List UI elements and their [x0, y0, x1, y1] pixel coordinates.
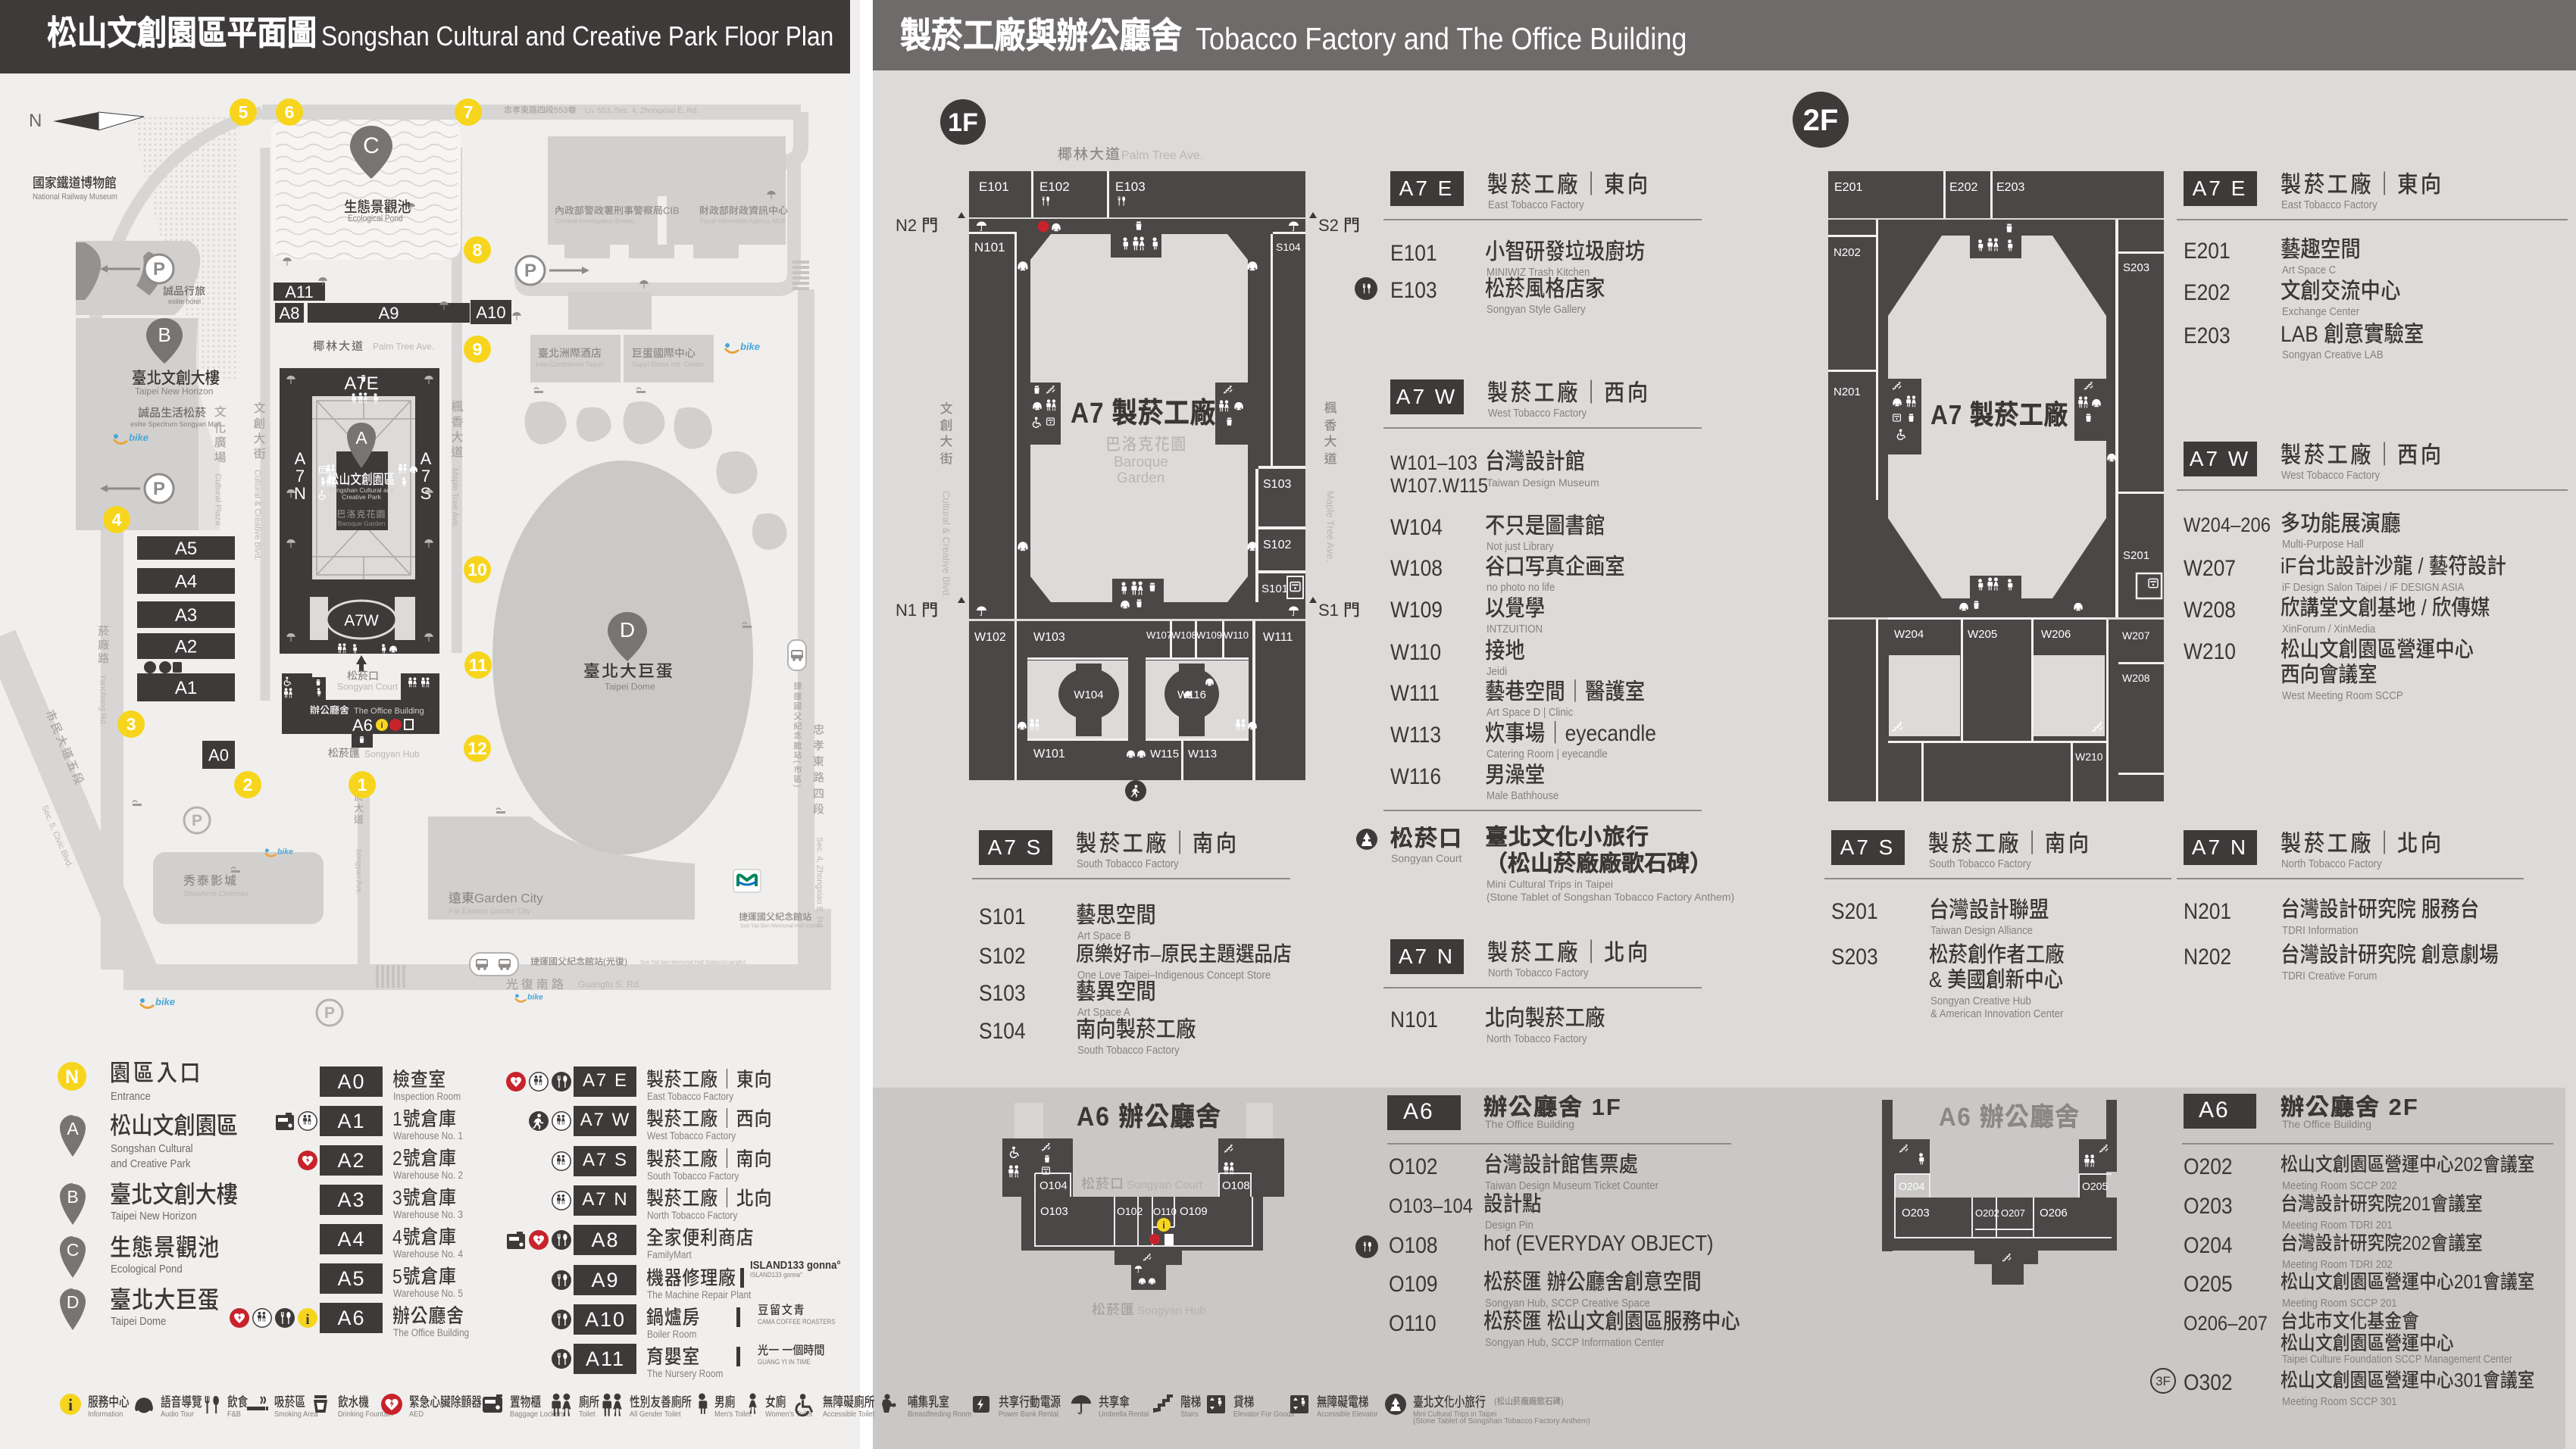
svg-text:A7 製菸工廠: A7 製菸工廠 [1930, 399, 2068, 430]
svg-text:O207: O207 [2001, 1207, 2025, 1219]
svg-text:N201: N201 [1834, 386, 1861, 398]
svg-text:E101: E101 [979, 180, 1009, 194]
svg-text:捷運國父紀念館站(市區): 捷運國父紀念館站(市區) [792, 682, 802, 789]
svg-text:8: 8 [473, 240, 483, 260]
svg-text:內政部警政署刑事警察局CIB: 內政部警政署刑事警察局CIB [555, 205, 680, 216]
svg-text:E202: E202 [1949, 181, 1977, 194]
svg-text:bike: bike [277, 848, 293, 857]
svg-text:i: i [1162, 1219, 1165, 1231]
svg-text:S103: S103 [1263, 478, 1291, 491]
svg-text:N101: N101 [974, 240, 1005, 255]
svg-text:Taipei Dome Intl. Center: Taipei Dome Intl. Center [631, 361, 705, 368]
svg-text:捷運國父紀念館站(光復): 捷運國父紀念館站(光復) [530, 957, 627, 967]
svg-text:A4: A4 [175, 572, 197, 592]
svg-text:N202: N202 [1834, 246, 1861, 259]
svg-text:松菸口: 松菸口 [1081, 1176, 1124, 1191]
svg-text:A7E: A7E [344, 373, 378, 394]
svg-text:A5: A5 [175, 539, 197, 559]
svg-text:A: A [67, 1119, 79, 1138]
svg-text:Cultural & Creative Blvd.: Cultural & Creative Blvd. [253, 470, 262, 561]
svg-text:誠品行旅: 誠品行旅 [163, 285, 205, 297]
svg-text:O204: O204 [1899, 1180, 1924, 1192]
svg-text:P: P [324, 1004, 335, 1022]
svg-text:椰林大道: 椰林大道 [313, 340, 364, 353]
svg-text:Sec. 4, Zhongxiao E. Rd.: Sec. 4, Zhongxiao E. Rd. [815, 837, 824, 929]
svg-text:Guangfu S. Rd.: Guangfu S. Rd. [578, 979, 641, 990]
svg-text:巨蛋國際中心: 巨蛋國際中心 [632, 347, 696, 359]
svg-text:S2 門: S2 門 [1318, 216, 1360, 235]
svg-text:松山文創園區: 松山文創園區 [328, 473, 395, 488]
svg-text:i: i [305, 1312, 309, 1328]
svg-text:C: C [67, 1240, 80, 1260]
svg-text:N1 門: N1 門 [896, 601, 938, 620]
svg-text:B: B [67, 1187, 78, 1207]
svg-text:誠品生活松菸: 誠品生活松菸 [138, 407, 206, 420]
svg-text:Cultural Plaza: Cultural Plaza [214, 473, 223, 526]
svg-text:N2 門: N2 門 [896, 216, 938, 235]
svg-text:A6 辦公廳舍: A6 辦公廳舍 [1939, 1102, 2080, 1132]
svg-text:W113: W113 [1188, 748, 1217, 760]
svg-text:W103: W103 [1033, 631, 1065, 644]
svg-text:S203: S203 [2123, 261, 2149, 274]
svg-text:菸廠路: 菸廠路 [96, 625, 109, 666]
svg-text:P: P [192, 812, 202, 829]
svg-text:W110: W110 [1224, 629, 1249, 641]
svg-text:Maple Tree Ave.: Maple Tree Ave. [1325, 491, 1336, 562]
svg-text:N: N [29, 111, 42, 131]
svg-text:5: 5 [239, 102, 249, 122]
svg-text:S102: S102 [1263, 539, 1291, 551]
svg-text:W109: W109 [1196, 629, 1222, 641]
svg-text:InterContinental Taipei: InterContinental Taipei [536, 361, 603, 368]
svg-text:P: P [153, 259, 165, 279]
svg-text:bike: bike [129, 432, 148, 443]
svg-text:Yanchang Rd.: Yanchang Rd. [98, 674, 108, 726]
svg-text:忠孝東路四段553巷: 忠孝東路四段553巷 [503, 105, 576, 115]
svg-text:National Railway Museum: National Railway Museum [33, 192, 117, 201]
svg-text:光復南路: 光復南路 [506, 978, 567, 992]
svg-text:A3: A3 [175, 605, 197, 626]
svg-text:A0: A0 [208, 745, 229, 764]
svg-text:遠東Garden City: 遠東Garden City [449, 892, 543, 906]
svg-text:A8: A8 [280, 304, 300, 323]
svg-text:O104: O104 [1039, 1179, 1068, 1192]
svg-text:Palm Tree Ave.: Palm Tree Ave. [1121, 149, 1203, 162]
svg-text:W116: W116 [1177, 689, 1206, 701]
svg-text:臺北洲際酒店: 臺北洲際酒店 [538, 347, 602, 359]
svg-text:O108: O108 [1222, 1179, 1250, 1192]
svg-text:O103: O103 [1040, 1205, 1068, 1218]
svg-text:12: 12 [467, 739, 487, 758]
svg-text:巴洛克花園: 巴洛克花園 [336, 509, 386, 520]
svg-text:椰林大道: 椰林大道 [1058, 146, 1121, 163]
svg-text:W210: W210 [2075, 751, 2103, 763]
svg-text:W206: W206 [2041, 628, 2071, 641]
svg-text:1F: 1F [948, 108, 978, 137]
svg-text:Palm Tree Ave.: Palm Tree Ave. [373, 342, 434, 352]
svg-text:2: 2 [243, 775, 253, 795]
svg-text:bike: bike [740, 341, 760, 352]
svg-text:Songyan Hub: Songyan Hub [364, 749, 420, 760]
svg-text:D: D [67, 1292, 80, 1312]
svg-text:6: 6 [285, 102, 295, 122]
svg-text:Taipei New Horizon: Taipei New Horizon [135, 386, 213, 397]
svg-text:巴洛克花園: 巴洛克花園 [1105, 435, 1187, 454]
svg-text:10: 10 [467, 560, 487, 579]
svg-text:Creative Park: Creative Park [342, 493, 381, 501]
svg-text:S201: S201 [2123, 549, 2149, 562]
svg-text:A7S: A7S [420, 449, 432, 503]
svg-text:Baroque Garden: Baroque Garden [338, 520, 386, 527]
svg-text:Criminal Investigation Bureau: Criminal Investigation Bureau [555, 217, 635, 224]
svg-text:文創大街: 文創大街 [938, 401, 953, 468]
svg-text:A2: A2 [175, 637, 197, 657]
svg-text:B: B [158, 323, 170, 346]
svg-text:A10: A10 [476, 303, 505, 322]
svg-text:A6 辦公廳舍: A6 辦公廳舍 [1077, 1102, 1222, 1132]
svg-text:S104: S104 [1276, 241, 1301, 253]
svg-text:Cultural & Creative Blvd.: Cultural & Creative Blvd. [941, 491, 952, 598]
svg-text:Taipei Dome: Taipei Dome [605, 682, 655, 692]
svg-text:文化廣場: 文化廣場 [212, 405, 227, 466]
svg-text:Garden: Garden [1117, 470, 1165, 486]
svg-text:W104: W104 [1074, 689, 1103, 701]
svg-text:O110: O110 [1153, 1206, 1177, 1217]
svg-text:A7W: A7W [344, 612, 379, 629]
svg-text:bike: bike [527, 994, 543, 1002]
svg-text:Songyan Court: Songyan Court [337, 682, 399, 692]
svg-text:i: i [68, 1395, 73, 1414]
svg-text:bike: bike [155, 996, 175, 1007]
svg-text:A: A [355, 428, 367, 448]
svg-text:The Office Building: The Office Building [354, 707, 424, 716]
svg-text:生態景觀池: 生態景觀池 [344, 198, 411, 215]
svg-text:eslite Spectrum Songyan Mall: eslite Spectrum Songyan Mall [130, 420, 220, 428]
svg-text:E103: E103 [1115, 180, 1146, 194]
svg-text:Sun Yat-Sen Memorial Hall Stat: Sun Yat-Sen Memorial Hall Station [740, 924, 822, 929]
svg-text:Ln. 553, Sec. 4, Zhongxiao E.: Ln. 553, Sec. 4, Zhongxiao E. Rd. [585, 107, 699, 115]
svg-text:P: P [524, 261, 536, 281]
svg-text:捷運國父紀念館站: 捷運國父紀念館站 [739, 912, 811, 923]
svg-text:松菸匯: 松菸匯 [328, 747, 360, 759]
svg-text:W205: W205 [1968, 628, 1997, 641]
svg-text:C: C [363, 133, 380, 158]
svg-text:A11: A11 [285, 283, 314, 301]
svg-text:W204: W204 [1894, 628, 1924, 641]
svg-text:A9: A9 [379, 304, 399, 323]
svg-text:松菸匯: 松菸匯 [1092, 1302, 1135, 1317]
svg-text:A7 製菸工廠: A7 製菸工廠 [1071, 397, 1216, 429]
svg-text:W111: W111 [1263, 631, 1293, 644]
svg-text:Baroque: Baroque [1114, 454, 1168, 470]
svg-text:楓香大道: 楓香大道 [449, 400, 464, 461]
svg-text:O205: O205 [2082, 1180, 2108, 1192]
svg-text:9: 9 [473, 339, 483, 359]
svg-text:E203: E203 [1996, 181, 2024, 194]
svg-text:W207: W207 [2122, 629, 2150, 642]
svg-text:Songyan Ave.: Songyan Ave. [355, 848, 363, 895]
svg-text:A6: A6 [352, 716, 373, 735]
svg-text:松菸口: 松菸口 [347, 670, 379, 682]
svg-text:7: 7 [464, 102, 474, 122]
svg-text:S101: S101 [1261, 582, 1288, 595]
svg-text:W108: W108 [1171, 629, 1197, 641]
svg-text:N: N [65, 1066, 79, 1088]
svg-text:i: i [380, 721, 383, 730]
svg-text:P: P [153, 479, 165, 499]
svg-text:Songyan Hub: Songyan Hub [1137, 1304, 1206, 1317]
svg-text:國家鐵道博物館: 國家鐵道博物館 [33, 175, 117, 190]
svg-text:忠孝東路四段: 忠孝東路四段 [811, 723, 824, 819]
svg-text:A7N: A7N [294, 449, 306, 503]
svg-text:E201: E201 [1834, 181, 1862, 194]
svg-text:Far Eastern Garden City: Far Eastern Garden City [449, 907, 530, 916]
svg-text:4: 4 [112, 510, 122, 529]
svg-text:辦公廳舍: 辦公廳舍 [310, 704, 349, 716]
svg-text:1: 1 [358, 775, 367, 795]
svg-text:Maple Tree Ave.: Maple Tree Ave. [451, 468, 460, 528]
svg-text:Fiscal Information Agency, MOF: Fiscal Information Agency, MOF [700, 217, 786, 224]
svg-text:Sun Yat-Sen Memorial Hall Stat: Sun Yat-Sen Memorial Hall Station(Guangf… [640, 960, 746, 966]
svg-text:O203: O203 [1902, 1207, 1930, 1219]
svg-text:2F: 2F [1803, 104, 1839, 137]
svg-text:3: 3 [127, 714, 136, 734]
svg-text:W107: W107 [1146, 629, 1172, 641]
svg-text:臺北大巨蛋: 臺北大巨蛋 [583, 662, 674, 681]
svg-text:E102: E102 [1039, 180, 1070, 194]
svg-text:W208: W208 [2122, 672, 2150, 684]
svg-text:S1 門: S1 門 [1318, 601, 1360, 620]
svg-text:W101: W101 [1033, 748, 1065, 760]
svg-text:11: 11 [469, 655, 488, 675]
svg-text:楓香大道: 楓香大道 [1322, 401, 1337, 468]
svg-text:W115: W115 [1150, 748, 1179, 760]
svg-text:O109: O109 [1180, 1205, 1208, 1218]
svg-text:W102: W102 [974, 631, 1006, 644]
svg-text:Ecological Pond: Ecological Pond [348, 214, 403, 224]
svg-text:O102: O102 [1117, 1205, 1143, 1217]
svg-text:D: D [620, 618, 635, 642]
svg-text:O202: O202 [1975, 1207, 1999, 1219]
svg-text:財政部財政資訊中心: 財政部財政資訊中心 [699, 205, 788, 216]
svg-text:A1: A1 [175, 678, 197, 698]
svg-text:O206: O206 [2040, 1207, 2068, 1219]
svg-text:秀泰影城: 秀泰影城 [183, 873, 238, 888]
svg-text:臺北文創大樓: 臺北文創大樓 [132, 369, 220, 387]
svg-text:Songyan Court: Songyan Court [1127, 1179, 1203, 1191]
svg-text:Showtime Cinemas: Showtime Cinemas [183, 890, 249, 898]
svg-text:eslite hotel: eslite hotel [168, 298, 201, 305]
